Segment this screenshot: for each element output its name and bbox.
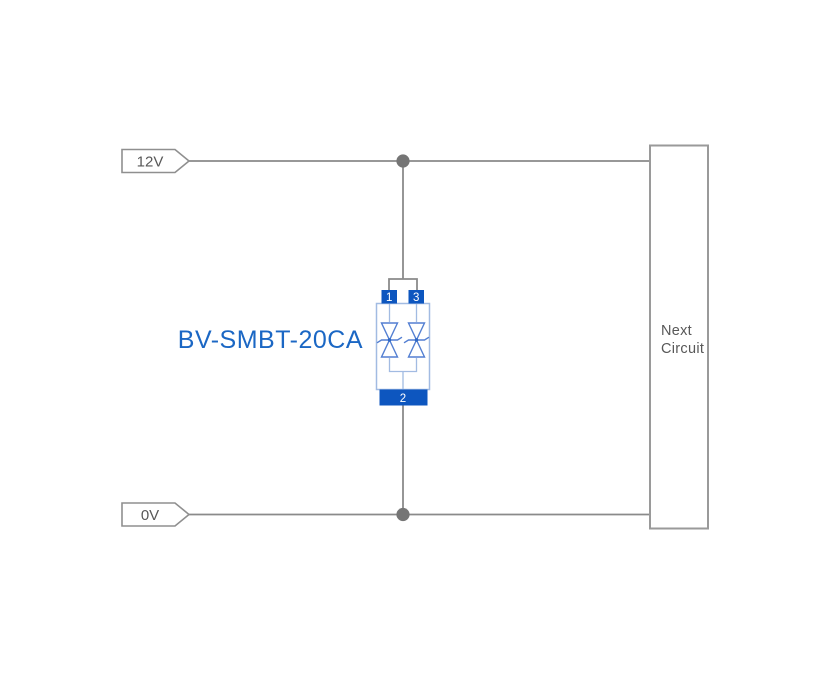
circuit-diagram: 12V 0V Next Circuit	[0, 0, 832, 675]
pin-3-label: 3	[413, 292, 419, 304]
diode-center-dot	[388, 338, 391, 341]
junction-dot-bottom	[396, 508, 409, 521]
net-label-0v: 0V	[141, 507, 159, 524]
net-label-12v: 12V	[137, 154, 164, 171]
pin-2-label: 2	[400, 393, 406, 405]
schematic-canvas: 12V 0V Next Circuit	[0, 0, 832, 675]
component-label: BV-SMBT-20CA	[178, 326, 363, 354]
tvs-component: 1 3 2 BV-SMBT-20CA	[178, 290, 430, 406]
pin-1-label: 1	[386, 292, 392, 304]
next-circuit-label-line2: Circuit	[661, 341, 704, 357]
junction-dot-top	[396, 154, 409, 167]
next-circuit-label-line1: Next	[661, 323, 692, 339]
diode-center-dot	[415, 338, 418, 341]
pin-bracket-wire	[389, 279, 417, 291]
